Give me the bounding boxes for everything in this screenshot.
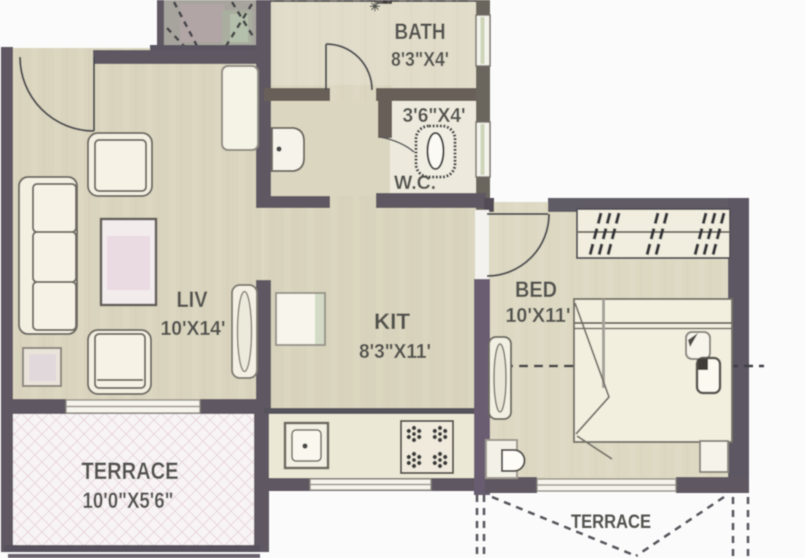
svg-text:TERRACE: TERRACE xyxy=(82,458,179,485)
svg-text:LIV: LIV xyxy=(177,287,208,312)
svg-text:3'6"X4': 3'6"X4' xyxy=(403,105,466,127)
svg-text:TERRACE: TERRACE xyxy=(571,512,651,533)
svg-text:BED: BED xyxy=(515,277,557,302)
svg-text:8'3"X11': 8'3"X11' xyxy=(359,341,431,363)
svg-text:10'X11': 10'X11' xyxy=(506,305,571,327)
svg-text:✳: ✳ xyxy=(370,0,381,14)
svg-text:KIT: KIT xyxy=(374,309,411,334)
svg-text:BATH: BATH xyxy=(395,19,446,44)
svg-text:W.C.: W.C. xyxy=(394,173,436,194)
svg-text:10'0"X5'6": 10'0"X5'6" xyxy=(83,488,174,513)
svg-text:10'X14': 10'X14' xyxy=(161,318,226,340)
svg-text:8'3"X4': 8'3"X4' xyxy=(391,49,449,71)
